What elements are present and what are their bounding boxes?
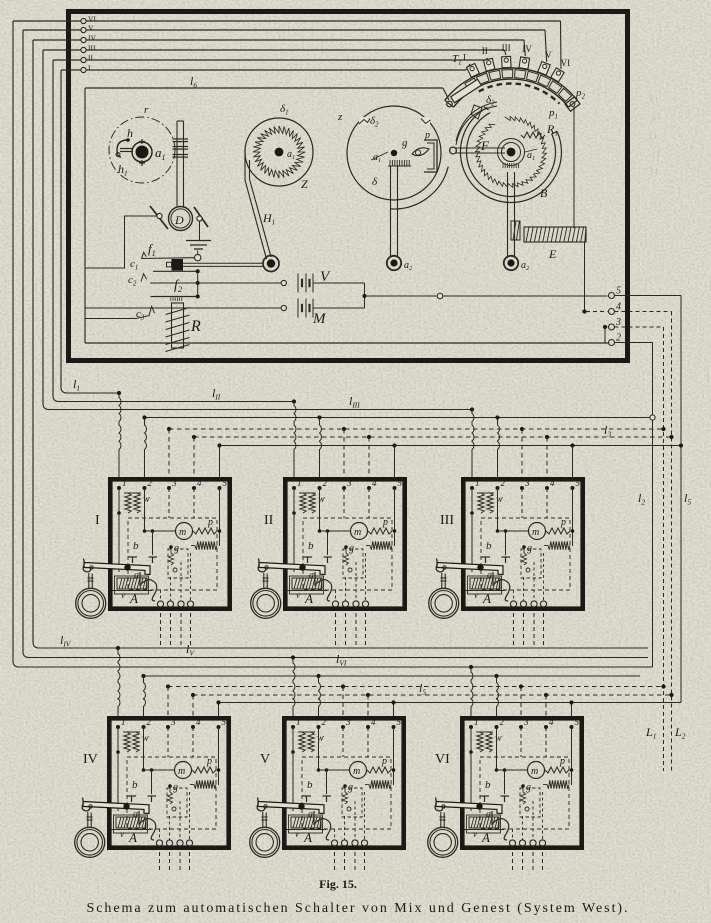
svg-text:l i: l i	[650, 94, 658, 105]
svg-text:F: F	[480, 138, 490, 153]
svg-text:I: I	[463, 53, 466, 63]
svg-text:III: III	[88, 44, 96, 53]
svg-text:l l: l l	[650, 167, 658, 178]
svg-text:Fig. 15.: Fig. 15.	[319, 877, 357, 891]
svg-text:II: II	[264, 513, 274, 528]
svg-text:R: R	[190, 318, 201, 335]
svg-text:V: V	[260, 752, 270, 767]
svg-text:z: z	[337, 111, 343, 123]
svg-text:Schema zum automatischen Schal: Schema zum automatischen Schalter von Mi…	[87, 901, 630, 916]
svg-text:IV: IV	[88, 34, 96, 43]
svg-text:IV: IV	[83, 752, 98, 767]
svg-text:V: V	[88, 24, 94, 33]
svg-text:l i: l i	[649, 131, 657, 142]
svg-text:M: M	[312, 311, 327, 327]
svg-text:B: B	[540, 186, 548, 200]
svg-text:.: .	[700, 672, 703, 683]
svg-text:δ: δ	[372, 176, 378, 188]
svg-text:.: .	[404, 365, 407, 376]
svg-text:III: III	[502, 43, 511, 53]
svg-text:,: ,	[254, 424, 257, 435]
svg-text:5: 5	[616, 286, 621, 297]
svg-text:r: r	[144, 104, 149, 116]
svg-text:4: 4	[616, 302, 621, 313]
svg-text:i l: i l	[652, 149, 660, 160]
svg-text:3: 3	[615, 317, 621, 328]
svg-text:II: II	[88, 54, 93, 63]
svg-text:g: g	[402, 137, 408, 149]
svg-text:VI: VI	[561, 58, 571, 68]
svg-text:IV: IV	[522, 44, 532, 54]
svg-text:VI: VI	[435, 752, 450, 767]
svg-text:I: I	[95, 513, 100, 528]
svg-text:2: 2	[616, 333, 621, 344]
svg-text:i l: i l	[652, 112, 660, 123]
svg-text:p: p	[424, 130, 430, 141]
svg-text:D: D	[174, 213, 184, 227]
svg-text:Z: Z	[301, 177, 308, 191]
svg-text:V: V	[545, 50, 552, 60]
svg-text:VI: VI	[88, 15, 96, 24]
svg-text:h: h	[127, 126, 133, 140]
svg-text:III: III	[440, 513, 454, 528]
svg-text:E: E	[548, 247, 557, 261]
svg-text:II: II	[482, 46, 488, 56]
